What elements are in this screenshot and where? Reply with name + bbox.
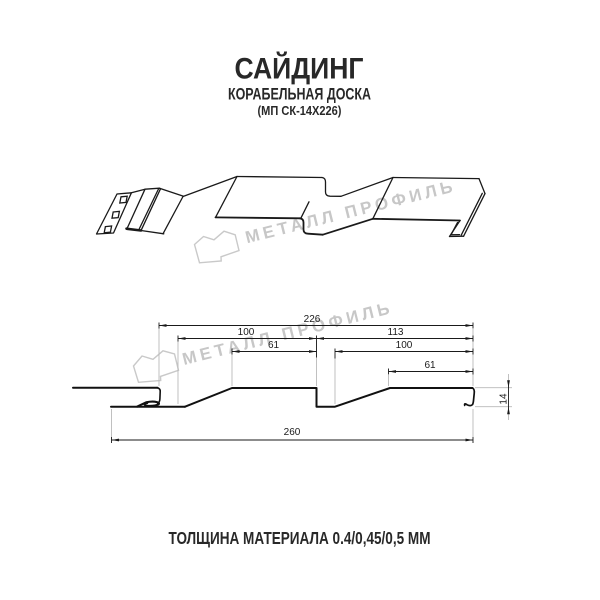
svg-text:61: 61 bbox=[268, 340, 280, 351]
svg-text:МЕТАЛЛ ПРОФИЛЬ: МЕТАЛЛ ПРОФИЛЬ bbox=[180, 298, 395, 369]
svg-text:100: 100 bbox=[238, 327, 255, 338]
svg-text:113: 113 bbox=[388, 327, 404, 338]
svg-text:ТОЛЩИНА МАТЕРИАЛА 0.4/0,45/0,5: ТОЛЩИНА МАТЕРИАЛА 0.4/0,45/0,5 ММ bbox=[169, 528, 431, 548]
svg-text:САЙДИНГ: САЙДИНГ bbox=[235, 52, 364, 86]
svg-text:61: 61 bbox=[424, 360, 436, 371]
svg-text:КОРАБЕЛЬНАЯ ДОСКА: КОРАБЕЛЬНАЯ ДОСКА bbox=[228, 85, 371, 104]
svg-text:14: 14 bbox=[499, 393, 510, 405]
svg-text:100: 100 bbox=[396, 340, 413, 351]
svg-text:(МП СК-14Х226): (МП СК-14Х226) bbox=[258, 104, 342, 118]
svg-text:226: 226 bbox=[304, 314, 321, 325]
svg-text:260: 260 bbox=[284, 427, 301, 438]
svg-text:МЕТАЛЛ ПРОФИЛЬ: МЕТАЛЛ ПРОФИЛЬ bbox=[243, 176, 458, 247]
